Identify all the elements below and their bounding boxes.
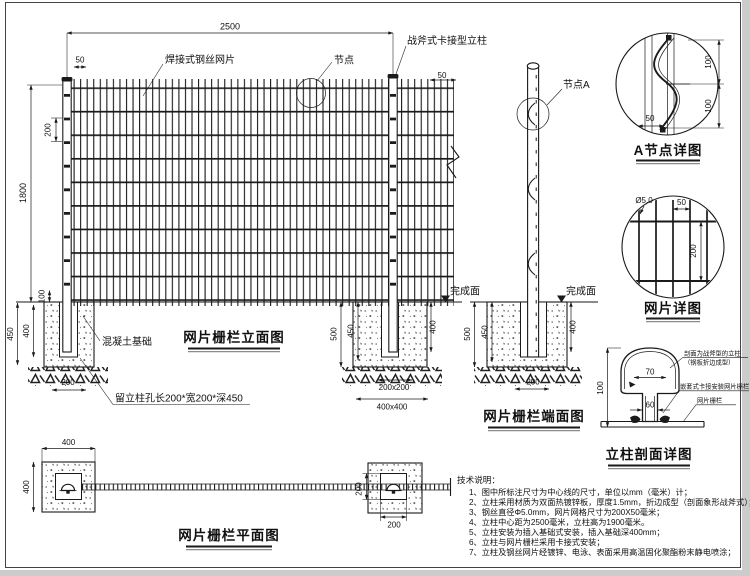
title-node-a-detail: A节点详图 (634, 142, 703, 164)
svg-text:立柱剖面详图: 立柱剖面详图 (606, 446, 693, 462)
label-section-post-1: 剖面为战斧型的立柱 (684, 349, 741, 358)
note-line-4: 4、立柱中心距为2500毫米，立柱高为1900毫米。 (469, 517, 649, 527)
dim-e-hole: 200 (526, 378, 540, 387)
fence-drawing-canvas: 2500 1800 200 50 50 100 450 400 200 500 … (0, 0, 750, 576)
dim-e-500: 500 (463, 327, 472, 341)
right-edge-strip (742, 0, 750, 576)
label-finish-elevation: 完成面 (450, 285, 480, 298)
dim-embed: 100 (38, 289, 47, 303)
bottom-edge-strip (0, 570, 750, 576)
dim-f2-hole: 200x200 (379, 383, 410, 392)
svg-text:网片栅栏平面图: 网片栅栏平面图 (178, 527, 280, 543)
label-node: 节点 (334, 55, 354, 67)
dim-e-400: 400 (569, 320, 578, 334)
dim-span: 2500 (220, 22, 240, 32)
title-mesh-detail: 网片详图 (644, 300, 702, 322)
dim-md-50: 50 (677, 198, 686, 207)
dim-md-200: 200 (689, 244, 698, 258)
label-post-type: 战斧式卡接型立柱 (407, 34, 487, 47)
title-elevation: 网片栅栏立面图 (183, 329, 285, 352)
svg-text:网片栅栏立面图: 网片栅栏立面图 (183, 329, 285, 345)
svg-text:网片详图: 网片详图 (644, 300, 702, 316)
dim-a-100-bottom: 100 (704, 99, 713, 113)
post-left (62, 77, 73, 352)
dim-p-400-top: 400 (62, 438, 76, 447)
notes-heading: 技术说明： (457, 474, 500, 485)
title-end-view: 网片栅栏端面图 (483, 408, 585, 431)
dim-a-100-top: 100 (704, 55, 713, 69)
note-line-3: 3、钢丝直径Φ5.0mm，网片网格尺寸为200X50毫米； (469, 507, 664, 517)
svg-text:网片栅栏端面图: 网片栅栏端面图 (483, 408, 585, 424)
note-line-7: 7、立柱及钢丝网片经镀锌、电泳、表面采用高温固化聚酯粉末静电喷涂； (469, 547, 736, 557)
label-welded-mesh: 焊接式钢丝网片 (165, 53, 235, 66)
dim-height: 1800 (18, 183, 28, 203)
dim-f1-hole: 200 (61, 378, 75, 387)
dim-f2-500: 500 (330, 327, 339, 341)
svg-text:A节点详图: A节点详图 (634, 142, 703, 158)
dim-p-200-v: 200 (355, 482, 364, 496)
post-end-view (527, 63, 539, 357)
dim-f2-400: 400 (429, 320, 438, 334)
label-section-post-2: （钢板折边成型） (684, 358, 734, 367)
note-line-6: 6、立柱与网片栅栏采用卡接式安装； (469, 537, 605, 547)
dim-s-100: 100 (596, 381, 605, 395)
dim-a-50: 50 (646, 114, 655, 123)
post-mid (388, 74, 399, 352)
title-post-section: 立柱剖面详图 (606, 446, 693, 469)
label-section-mesh: 网片栅栏 (697, 396, 722, 405)
dim-p-200-b: 200 (387, 521, 401, 530)
label-finish-end: 完成面 (566, 285, 596, 298)
label-node-a: 节点A (563, 79, 590, 91)
dim-f1-450: 450 (6, 327, 15, 341)
note-line-1: 1、图中所标注尺寸为中心线的尺寸，单位以mm（毫米）计； (469, 487, 692, 497)
dim-p-400-left: 400 (22, 480, 31, 494)
dim-s-70: 70 (646, 368, 655, 377)
dim-e-450: 450 (481, 325, 490, 339)
dim-gap-tl: 50 (76, 56, 85, 65)
dim-f2-base: 400x400 (377, 403, 408, 412)
label-section-clip: 嵌套式卡接安装网片栅栏 (680, 382, 749, 391)
dim-s-60: 60 (646, 401, 655, 410)
dim-f1-400: 400 (22, 324, 31, 338)
note-line-5: 5、立柱安装为插入基础式安装，插入基础深400mm； (469, 527, 665, 537)
cad-fence-drawing-page: 2500 1800 200 50 50 100 450 400 200 500 … (0, 0, 750, 576)
dim-f2-450: 450 (347, 324, 356, 338)
dim-gap-tr: 50 (438, 71, 447, 80)
dim-md-dia: Ø5.0 (635, 196, 653, 205)
title-plan: 网片栅栏平面图 (178, 527, 280, 550)
wire-mesh-panel (67, 79, 459, 306)
label-post-hole: 留立柱孔长200*宽200*深450 (115, 392, 243, 405)
dim-cell: 200 (44, 123, 53, 137)
note-line-2: 2、立柱采用材质为双面热镀锌板，厚度1.5mm，折边成型（剖面象形战斧式）； (469, 497, 750, 507)
label-concrete-foundation: 混凝土基础 (102, 335, 152, 348)
